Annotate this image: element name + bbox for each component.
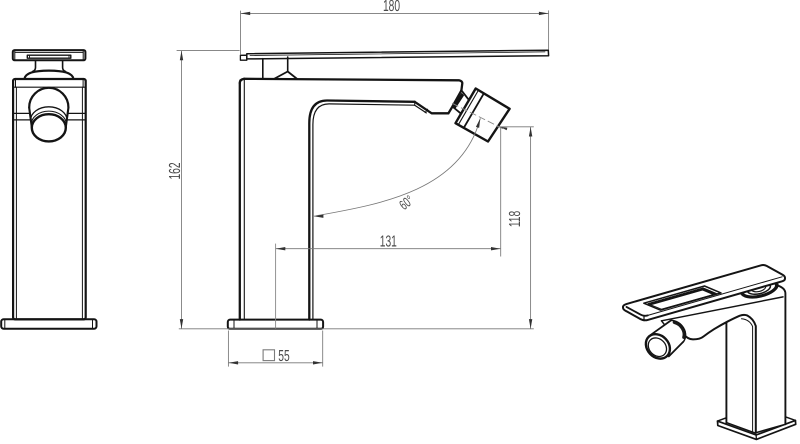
svg-text:118: 118: [507, 211, 524, 227]
svg-text:131: 131: [380, 233, 397, 250]
svg-text:55: 55: [278, 348, 289, 365]
svg-text:162: 162: [167, 162, 184, 179]
svg-text:60°: 60°: [396, 192, 417, 213]
svg-text:180: 180: [383, 0, 400, 15]
